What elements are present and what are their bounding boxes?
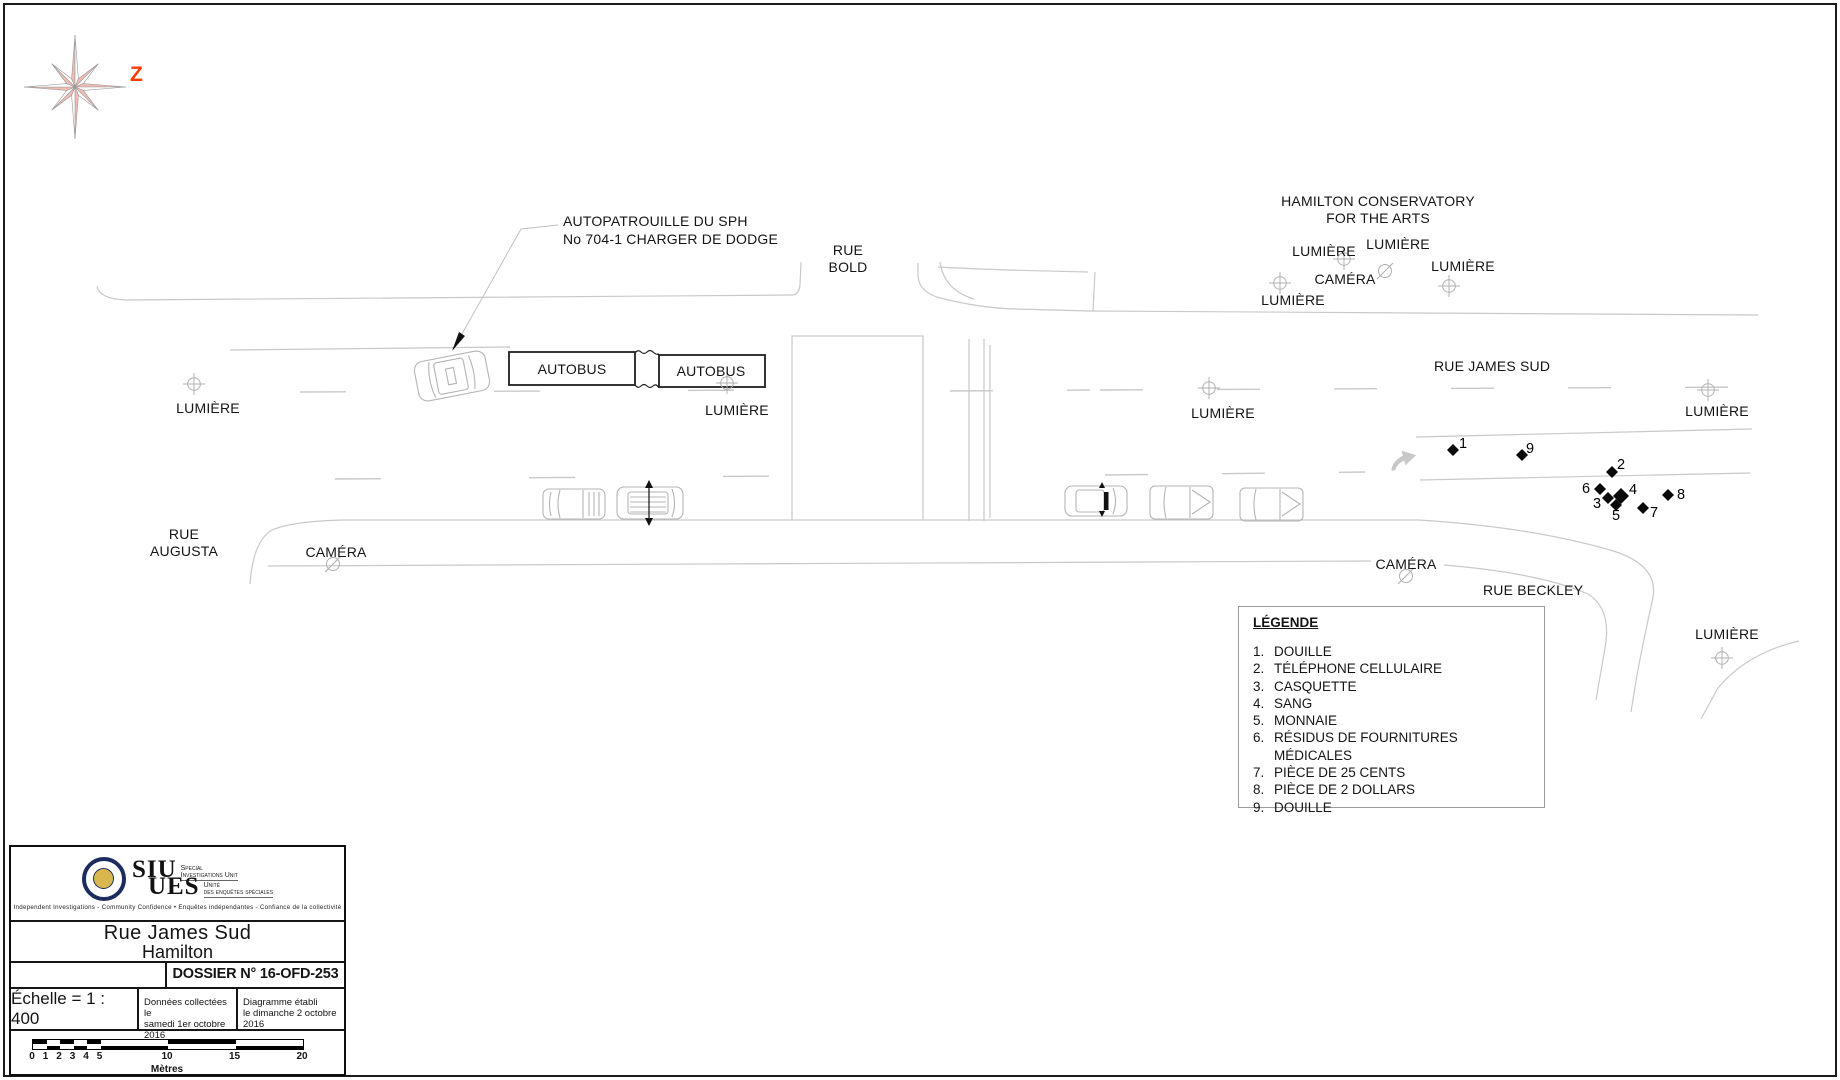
compass-rose [24,35,126,139]
scalebar-tick: 2 [56,1051,62,1062]
legend-item: 5. MONNAIE [1253,712,1536,729]
legend-box: LÉGENDE 1. DOUILLE 2. TÉLÉPHONE CELLULAI… [1238,606,1545,808]
patrol-callout: AUTOPATROUILLE DU SPH No 704-1 CHARGER D… [563,212,778,248]
light-label-center: LUMIÈRE [705,402,769,419]
lane-dashes [300,387,1756,479]
diagram-established-cell: Diagramme établi le dimanche 2 octobre 2… [238,989,344,1029]
legend-item: 6. RÉSIDUS DE FOURNITURES MÉDICALES [1253,729,1536,764]
patrol-callout-line2: No 704-1 CHARGER DE DODGE [563,230,778,248]
marker-number-8: 8 [1677,487,1685,503]
established-line2: le dimanche 2 octobre 2016 [243,1008,344,1030]
legend-item-num: 3. [1253,678,1274,695]
title-block-location-row: Rue James Sud Hamilton [11,920,344,961]
scalebar [32,1039,304,1050]
light-label-cons-4: LUMIÈRE [1261,292,1325,309]
pickup-truck-east-2 [1240,488,1303,521]
legend-item: 2. TÉLÉPHONE CELLULAIRE [1253,660,1536,677]
patrol-leader-arrow [452,225,558,351]
siu-logo: SIU Special Investigations Unit UES Unit… [82,857,273,901]
legend-item: 8. PIÈCE DE 2 DOLLARS [1253,781,1536,798]
scalebar-tick: 15 [229,1051,240,1062]
scalebar-tick: 0 [29,1051,35,1062]
dossier-empty-cell [11,963,167,987]
scalebar-tick: 10 [161,1051,172,1062]
rue-bold-line1: RUE [829,242,868,259]
scalebar-tick: 3 [70,1051,76,1062]
bus-label-1: AUTOBUS [538,361,607,378]
siu-subtitle-line1: Special [181,865,238,872]
evidence-diamond-1 [1447,444,1459,456]
location-line2: Hamilton [11,943,344,961]
scale-text: Échelle = 1 : 400 [11,989,137,1029]
street-label-rue-bold: RUE BOLD [829,242,868,276]
patrol-callout-line1: AUTOPATROUILLE DU SPH [563,212,778,230]
light-symbol [1198,377,1220,399]
ues-subtitle: Unité des enquêtes spéciales [204,882,273,898]
light-symbol [1711,647,1733,669]
camera-symbol [1377,263,1393,279]
light-label-cons-3: LUMIÈRE [1431,258,1495,275]
legend-item-label: PIÈCE DE 25 CENTS [1274,764,1405,781]
pickup-truck-west [543,489,605,519]
legend-item: 1. DOUILLE [1253,643,1536,660]
marker-number-4: 4 [1629,482,1637,498]
data-collected-cell: Données collectées le samedi 1er octobre… [137,989,238,1029]
car-east-1 [1065,486,1127,516]
rue-augusta-line1: RUE [150,526,218,543]
ues-subtitle-line1: Unité [204,882,273,889]
collected-line1: Données collectées le [144,997,236,1019]
marker-number-9: 9 [1526,441,1534,457]
evidence-diamond-6 [1594,483,1606,495]
title-block-meta-row: Échelle = 1 : 400 Données collectées le … [11,987,344,1029]
legend-item-label: CASQUETTE [1274,678,1357,695]
van-with-arrow [617,487,683,519]
marker-number-5: 5 [1612,508,1620,524]
siu-badge-crest [93,868,114,889]
legend-item-num: 1. [1253,643,1274,660]
camera-label-east: CAMÉRA [1375,556,1436,573]
legend-item-num: 4. [1253,695,1274,712]
scalebar-tick: 20 [296,1051,307,1062]
legend-item-label: DOUILLE [1274,643,1332,660]
camera-label-west: CAMÉRA [305,544,366,561]
legend-item-label: RÉSIDUS DE FOURNITURES MÉDICALES [1274,729,1536,764]
dossier-number: DOSSIER N° 16-OFD-253 [167,963,344,987]
evidence-diamond-3 [1602,492,1614,504]
legend-title: LÉGENDE [1253,615,1536,630]
title-block: SIU Special Investigations Unit UES Unit… [9,845,346,1076]
rue-augusta-line2: AUGUSTA [150,543,218,560]
light-symbol [1438,275,1460,297]
ues-wordmark: UES [148,876,200,898]
marker-number-3: 3 [1593,496,1601,512]
rue-bold-line2: BOLD [829,259,868,276]
compass-north-label: Z [130,63,143,87]
conservatory-line1: HAMILTON CONSERVATORY [1281,193,1475,210]
legend-item-num: 7. [1253,764,1274,781]
police-car [413,349,491,402]
legend-item-label: DOUILLE [1274,799,1332,816]
legend-item-num: 9. [1253,799,1274,816]
location-line1: Rue James Sud [11,924,344,943]
title-block-dossier-row: DOSSIER N° 16-OFD-253 [11,961,344,987]
street-label-rue-augusta: RUE AUGUSTA [150,526,218,560]
legend-item-num: 6. [1253,729,1274,764]
light-label-west: LUMIÈRE [176,400,240,417]
established-line1: Diagramme établi [243,997,344,1008]
legend-item-label: MONNAIE [1274,712,1337,729]
light-label-far-east: LUMIÈRE [1685,403,1749,420]
legend-item: 9. DOUILLE [1253,799,1536,816]
conservatory-label: HAMILTON CONSERVATORY FOR THE ARTS [1281,193,1475,227]
legend-item-label: PIÈCE DE 2 DOLLARS [1274,781,1415,798]
light-symbol [1697,379,1719,401]
legend-item: 7. PIÈCE DE 25 CENTS [1253,764,1536,781]
scalebar-unit: Mètres [151,1064,183,1075]
light-symbol [183,373,205,395]
legend-item: 3. CASQUETTE [1253,678,1536,695]
legend-item: 4. SANG [1253,695,1536,712]
turn-arrow [1387,447,1418,471]
pickup-truck-east-1 [1150,486,1213,519]
title-block-logo-row: SIU Special Investigations Unit UES Unit… [11,847,344,920]
light-label-mid-east: LUMIÈRE [1191,405,1255,422]
site-plan-page: Z AUTOPATROUILLE DU SPH No 704-1 CHARGER… [0,0,1840,1080]
evidence-diamond-8 [1662,489,1674,501]
camera-label-conservatory: CAMÉRA [1314,271,1375,288]
conservatory-line2: FOR THE ARTS [1281,210,1475,227]
marker-number-1: 1 [1459,436,1467,452]
legend-item-num: 5. [1253,712,1274,729]
legend-item-label: TÉLÉPHONE CELLULAIRE [1274,660,1442,677]
light-label-south-east: LUMIÈRE [1695,626,1759,643]
legend-item-num: 8. [1253,781,1274,798]
siu-tagline: Independent Investigations - Community C… [13,904,341,911]
camera-symbols [325,263,1414,584]
evidence-diamond-7 [1637,502,1649,514]
street-label-rue-james-sud: RUE JAMES SUD [1434,358,1550,375]
legend-item-num: 2. [1253,660,1274,677]
light-label-cons-2: LUMIÈRE [1366,236,1430,253]
vehicle-marks [645,480,1109,526]
marker-number-7: 7 [1650,505,1658,521]
scalebar-tick: 4 [83,1051,89,1062]
ues-subtitle-line2: des enquêtes spéciales [204,889,273,896]
scalebar-tick: 5 [97,1051,103,1062]
marker-number-2: 2 [1617,457,1625,473]
light-label-cons-1: LUMIÈRE [1292,243,1356,260]
scalebar-row: 0 1 2 3 4 5 10 15 20 Mètres [11,1029,344,1074]
siu-logo-text: SIU Special Investigations Unit UES Unit… [132,859,273,898]
street-label-rue-beckley: RUE BECKLEY [1483,582,1583,599]
marker-number-6: 6 [1582,481,1590,497]
scalebar-tick: 1 [43,1051,49,1062]
bus-label-2: AUTOBUS [677,363,746,380]
legend-item-label: SANG [1274,695,1312,712]
siu-badge-icon [82,857,126,901]
light-symbol [1269,272,1291,294]
